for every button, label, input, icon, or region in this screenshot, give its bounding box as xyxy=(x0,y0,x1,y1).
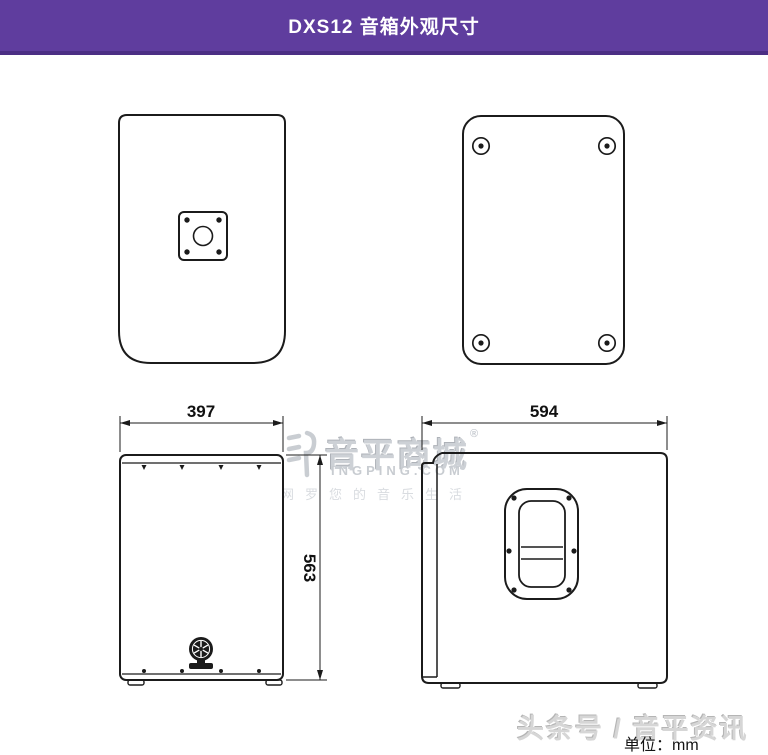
dimension-front-width: 397 xyxy=(120,402,283,452)
front-height-label: 563 xyxy=(300,554,319,582)
rubber-feet xyxy=(473,138,615,351)
dimension-diagram: 音平商城 ® INGPING.COM 网罗您的音乐生活 xyxy=(0,0,768,753)
dimension-side-depth: 594 xyxy=(422,402,667,450)
side-view-outline xyxy=(422,453,667,683)
top-view-outline xyxy=(119,115,285,363)
speaker-front-view xyxy=(120,455,283,685)
speaker-bottom-view xyxy=(463,116,624,364)
side-handle xyxy=(505,489,578,599)
pole-plate-screws xyxy=(184,217,221,254)
side-depth-label: 594 xyxy=(530,402,559,421)
bottom-view-outline xyxy=(463,116,624,364)
dimension-front-height: 563 xyxy=(286,455,327,680)
front-width-label: 397 xyxy=(187,402,215,421)
yamaha-logo-badge xyxy=(189,637,213,669)
speaker-top-view xyxy=(119,115,285,363)
unit-note: 单位：mm xyxy=(624,731,699,755)
speaker-dimension-drawing: 397 563 594 xyxy=(0,0,768,753)
speaker-side-view xyxy=(422,453,667,688)
grille-bottom-screws xyxy=(142,669,261,673)
pole-socket-hole xyxy=(194,227,213,246)
grille-top-screws xyxy=(142,465,262,470)
